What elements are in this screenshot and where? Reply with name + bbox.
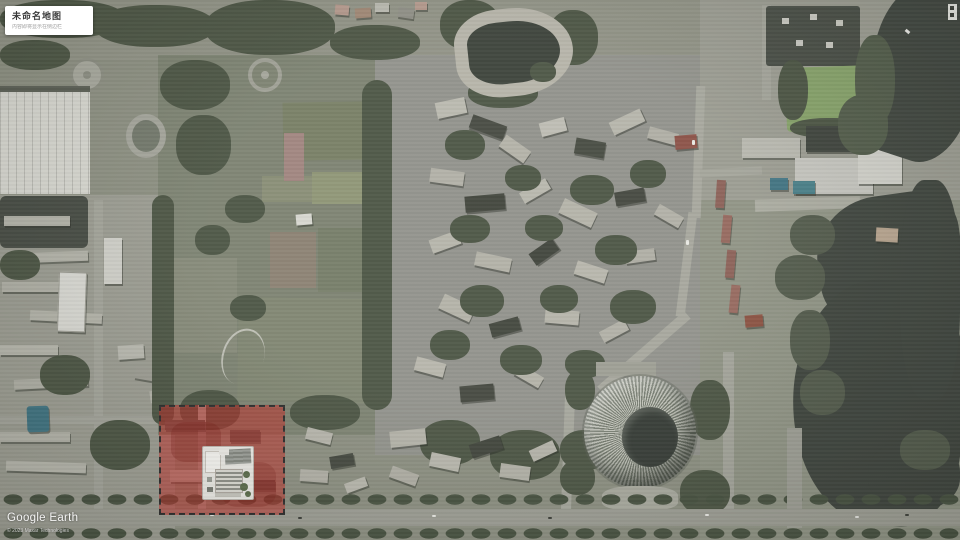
tree-cluster <box>460 285 504 317</box>
plan-path <box>215 493 241 497</box>
roof-vent <box>796 40 803 46</box>
tree-cluster <box>450 215 490 243</box>
rooftop <box>335 4 350 15</box>
imagery-attribution: © 2023 Maxar Technologies <box>7 528 69 534</box>
plan-unit-rows <box>215 469 243 493</box>
rooftop <box>355 7 372 18</box>
building <box>459 384 494 403</box>
tree-cluster <box>530 62 556 82</box>
apartment-slab <box>4 216 70 226</box>
park-shed <box>296 213 313 225</box>
tree-cluster <box>225 195 265 223</box>
pool-teal-roof <box>27 406 50 433</box>
building <box>329 453 355 469</box>
industrial-building <box>742 138 800 158</box>
site-plan-inset[interactable] <box>202 446 254 500</box>
tree-line-west <box>152 195 174 425</box>
car <box>905 514 909 516</box>
roundabout <box>248 58 282 92</box>
tree-cluster <box>205 0 335 55</box>
sports-field <box>165 258 237 353</box>
pier-dot <box>950 13 954 17</box>
map-title-card[interactable]: 未命名地图 内容即将显示在侧边栏 <box>5 6 93 35</box>
tree-cluster <box>690 380 730 440</box>
teal-tank <box>793 181 815 194</box>
building <box>300 469 329 483</box>
rooftop <box>397 7 414 19</box>
car <box>705 514 709 516</box>
pier-marker <box>948 4 957 20</box>
tree-cluster <box>430 330 470 360</box>
plan-tree <box>240 483 248 491</box>
teal-tank <box>770 178 788 190</box>
small-building <box>118 344 145 360</box>
shore-trees <box>790 310 830 370</box>
torus-forecourt <box>596 362 656 376</box>
building <box>389 466 419 487</box>
roundabout-center <box>261 71 269 79</box>
car <box>298 517 302 519</box>
bottom-arterial-road <box>0 509 960 526</box>
tree-cluster <box>500 345 542 375</box>
car <box>432 515 436 517</box>
apartment-slab <box>2 282 64 292</box>
tree-cluster <box>176 115 231 175</box>
google-earth-watermark: Google Earth <box>7 512 78 524</box>
rooftop <box>415 2 427 10</box>
tree-cluster <box>90 420 150 470</box>
ring-building-area <box>448 0 583 105</box>
white-tower <box>57 272 87 333</box>
tree-cluster <box>40 355 90 395</box>
shore-trees <box>790 215 835 255</box>
car <box>692 140 695 145</box>
shore-trees <box>775 255 825 300</box>
tree-cluster <box>160 60 230 110</box>
red-roof-house <box>745 314 764 328</box>
rooftop <box>375 3 389 12</box>
roof-vent <box>826 42 833 48</box>
tree-cluster <box>195 225 230 255</box>
tree-cluster <box>630 160 666 188</box>
tree-cluster <box>595 235 637 265</box>
tree-cluster <box>610 290 656 324</box>
lakeside-pavilion <box>876 227 899 242</box>
street-tree-row <box>0 492 960 510</box>
tree-cluster <box>445 130 485 160</box>
roof-vent <box>810 14 817 20</box>
street-tree-row <box>0 526 960 540</box>
map-subtitle: 内容即将显示在侧边栏 <box>12 24 86 30</box>
plan-tree <box>243 471 250 478</box>
roof-vent <box>782 18 789 24</box>
pink-court <box>284 133 304 181</box>
tree-cluster <box>290 395 360 430</box>
lake-east-edge <box>900 180 960 400</box>
round-building <box>126 114 166 158</box>
left-horizontal-road <box>0 416 162 424</box>
map-title: 未命名地图 <box>12 11 86 21</box>
bottom-right-road <box>787 428 802 528</box>
left-vertical-road <box>94 200 103 515</box>
building <box>344 477 368 494</box>
tree-cluster <box>0 250 40 280</box>
dirt-field <box>270 232 316 288</box>
industrial-warehouse <box>0 86 90 194</box>
building <box>499 463 531 481</box>
tree-cluster <box>540 285 578 313</box>
apartment-slab <box>0 432 70 442</box>
tree-cluster <box>95 5 215 47</box>
pier-dot <box>950 6 954 10</box>
tree-cluster <box>778 60 808 120</box>
shore-trees <box>800 370 845 415</box>
shore-trees <box>900 430 950 470</box>
red-roof-terrace <box>715 180 726 209</box>
white-tower <box>104 238 122 284</box>
tree-cluster <box>330 25 420 60</box>
car <box>686 240 689 245</box>
plaza-center <box>83 71 91 79</box>
tree-cluster <box>230 295 266 321</box>
tree-line-east <box>362 80 392 410</box>
roof-vent <box>836 20 843 26</box>
car <box>855 516 859 518</box>
plan-outbuilding <box>207 487 213 492</box>
apartment-slab <box>0 345 58 355</box>
torus-building-atrium <box>622 407 678 467</box>
satellite-map-canvas[interactable]: 未命名地图 内容即将显示在侧边栏 Google Earth © 2023 Max… <box>0 0 960 540</box>
plan-tree <box>245 491 251 497</box>
tree-cluster <box>570 175 614 205</box>
plan-outbuilding <box>207 477 212 482</box>
tree-cluster <box>838 95 888 155</box>
car <box>548 517 552 519</box>
tree-cluster <box>505 165 541 191</box>
tree-cluster <box>525 215 563 241</box>
dark-flat-building <box>766 6 860 66</box>
tree-cluster <box>560 460 595 495</box>
plan-white-block <box>219 447 229 455</box>
tree-cluster <box>0 40 70 70</box>
